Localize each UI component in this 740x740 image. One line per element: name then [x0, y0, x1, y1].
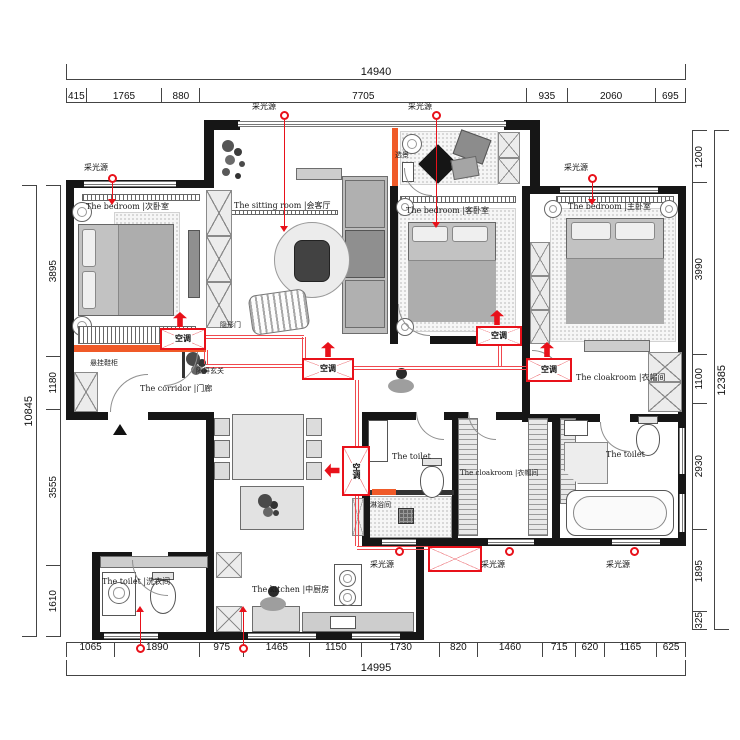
wall [416, 545, 424, 640]
wall [206, 412, 214, 640]
light-source-arrow-icon [136, 602, 144, 612]
dim-segment: 1730 [361, 642, 439, 657]
dining-chair [306, 418, 322, 436]
burner [339, 570, 356, 587]
dim-right-segments: 12003990110029301895325 [692, 130, 707, 630]
dim-segment: 935 [526, 88, 567, 103]
dim-segment-value: 880 [172, 91, 191, 103]
bathtub-basin [573, 496, 667, 530]
dim-segment: 1065 [66, 642, 114, 657]
light-source-icon [588, 174, 597, 183]
light-source-icon [395, 547, 404, 556]
light-source-icon [136, 644, 145, 653]
ac-label: 空调 [490, 332, 508, 340]
dim-top-segments: 415176588077059352060695 [66, 88, 686, 103]
sofa-cushion [345, 280, 385, 328]
door-arc [164, 352, 198, 386]
dim-segment: 7705 [199, 88, 526, 103]
dim-segment: 1180 [46, 356, 61, 409]
dim-segment-value: 7705 [351, 91, 375, 103]
light-source-label: 采光源 [564, 162, 588, 173]
room-label-cloakroom-center: The cloakroom |衣帽间 [460, 468, 538, 478]
pillow [412, 226, 448, 242]
light-source-line [140, 610, 141, 644]
room-label-toilet-center: The toilet [392, 452, 431, 461]
wardrobe-cabinet [206, 190, 232, 236]
light-source-icon [280, 111, 289, 120]
plant [222, 140, 234, 152]
striped-pouf [247, 288, 310, 336]
dim-segment-value: 695 [661, 91, 680, 103]
ac-arrow-icon [325, 464, 340, 478]
light-source-icon [505, 547, 514, 556]
dim-bottom-total-value: 14995 [361, 662, 392, 674]
light-source-label: 采光源 [481, 559, 505, 570]
dresser [188, 230, 200, 298]
room-label-laundry: The toilet |洗衣间 [102, 576, 170, 587]
ac-label: 空调 [319, 365, 337, 373]
tv-console [296, 168, 342, 180]
dim-left-total-value: 10845 [23, 396, 35, 427]
room-label-bedroom-left: The bedroom |次卧室 [86, 201, 169, 212]
dim-segment-value: 1165 [619, 642, 643, 654]
ac-unit: 空调 [302, 358, 354, 380]
ac-pipe [355, 380, 359, 446]
dim-segment: 3895 [46, 185, 61, 356]
dim-segment-value: 415 [67, 91, 86, 103]
wall [496, 412, 526, 420]
light-source-arrow-icon [280, 226, 288, 236]
light-source-arrow-icon [239, 602, 247, 612]
light-source-label: 采光源 [84, 162, 108, 173]
dim-segment-value: 325 [694, 612, 705, 629]
nightstand-lamp [660, 200, 678, 218]
dim-segment-value: 1065 [79, 642, 103, 654]
balcony-closet [498, 158, 520, 184]
dining-chair [214, 418, 230, 436]
pillow [82, 271, 96, 309]
ac-pipe [357, 546, 429, 550]
kitchen-island [240, 486, 304, 530]
dim-segment-value: 975 [212, 642, 231, 654]
light-source-line [243, 610, 244, 644]
wall [522, 186, 530, 346]
room-label-bedroom-mid: The bedroom |客卧室 [406, 205, 489, 216]
armchair [294, 240, 330, 282]
dim-segment: 3555 [46, 409, 61, 565]
dim-segment-value: 625 [662, 642, 681, 654]
island-plant [258, 494, 272, 508]
dim-segment-value: 2060 [599, 91, 623, 103]
screen-entry-label: 隔屏玄关 [196, 366, 224, 376]
dining-chair [214, 440, 230, 458]
dim-segment-value: 935 [537, 91, 556, 103]
window [104, 633, 158, 639]
room-label-kitchen: The kitchen |中厨房 [252, 584, 329, 595]
wall [362, 412, 416, 420]
dim-segment: 3990 [692, 182, 707, 354]
ac-label: 空调 [351, 463, 361, 479]
light-source-icon [239, 644, 248, 653]
scenery-label: 选景 [395, 150, 409, 160]
floor-plan-canvas: 14940 415176588077059352060695 106518909… [0, 0, 740, 740]
kitchen-counter [302, 612, 414, 632]
light-source-label: 采光源 [252, 101, 276, 112]
dresser [584, 340, 650, 352]
dim-segment-value: 715 [550, 642, 569, 654]
light-source-icon [108, 174, 117, 183]
dim-segment: 820 [439, 642, 476, 657]
light-source-label: 采光源 [606, 559, 630, 570]
dim-segment-value: 1890 [145, 642, 169, 654]
dim-segment: 1890 [114, 642, 199, 657]
dim-segment-value: 1610 [48, 590, 59, 612]
dim-right-total: 12385 [714, 130, 729, 630]
balcony-closet [498, 132, 520, 158]
dim-bottom-total: 14995 [66, 660, 686, 676]
dim-top-total-value: 14940 [361, 66, 392, 78]
light-source-label: 采光源 [408, 101, 432, 112]
pillow [82, 229, 96, 267]
dim-segment: 625 [656, 642, 686, 657]
bathroom-sink [564, 420, 588, 436]
light-source-icon [630, 547, 639, 556]
window [560, 187, 658, 193]
wall [66, 412, 108, 420]
room-label-bedroom-right: The bedroom |主卧室 [568, 201, 651, 212]
light-source-icon [432, 111, 441, 120]
dim-segment: 975 [199, 642, 243, 657]
light-source-line [592, 183, 593, 199]
light-source-label: 采光源 [370, 559, 394, 570]
dim-segment: 1465 [243, 642, 309, 657]
light-source-line [112, 183, 113, 199]
dining-chair [214, 462, 230, 480]
person-figure [388, 379, 414, 393]
dim-segment: 620 [575, 642, 604, 657]
window [248, 633, 316, 639]
window [612, 539, 660, 545]
highlight-box [428, 546, 482, 572]
dim-segment-value: 2930 [694, 455, 705, 477]
sofa-cushion [345, 180, 385, 228]
light-source-arrow-icon [432, 222, 440, 232]
shoe-cabinet-label: 悬挂鞋柜 [90, 358, 118, 368]
orange-wall-strip [372, 489, 396, 495]
ac-pipe [302, 337, 306, 358]
dim-segment-value: 1460 [498, 642, 522, 654]
person-figure [260, 597, 286, 611]
wall [530, 120, 540, 194]
sofa-cushion [345, 230, 385, 278]
room-label-shower: 淋浴间 [370, 500, 391, 510]
dim-segment-value: 1180 [48, 372, 59, 394]
shower-head [398, 508, 414, 524]
dim-segment-value: 1100 [694, 368, 705, 390]
dim-segment: 715 [542, 642, 575, 657]
dim-segment: 1895 [692, 529, 707, 611]
dim-segment-value: 1895 [694, 560, 705, 582]
ac-unit: 空调 [476, 326, 522, 346]
window-sill [400, 196, 516, 203]
window [382, 539, 416, 545]
kitchen-cabinet [216, 552, 242, 578]
dim-segment: 880 [161, 88, 199, 103]
window [488, 539, 534, 545]
dining-table [232, 414, 304, 480]
kitchen-sink [330, 616, 356, 629]
dim-segment-value: 1465 [265, 642, 289, 654]
dim-segment: 2930 [692, 403, 707, 530]
dim-segment: 1460 [477, 642, 543, 657]
ac-pipe [355, 496, 359, 546]
wardrobe-cabinet [530, 242, 550, 276]
dim-left-segments: 3895118035551610 [46, 185, 61, 637]
dim-top-total: 14940 [66, 64, 686, 80]
dim-segment: 1200 [692, 130, 707, 182]
room-label-cloakroom-right: The cloakroom |衣帽间 [576, 372, 666, 383]
hidden-door-label: 隐形门 [220, 320, 241, 330]
room-label-toilet-right: The toilet [606, 450, 645, 459]
ac-pipe [498, 346, 502, 366]
dim-segment-value: 3555 [48, 476, 59, 498]
ac-pipe [354, 366, 526, 370]
wall [204, 120, 240, 130]
window [84, 181, 176, 187]
dim-segment-value: 3895 [48, 260, 59, 282]
dim-left-total: 10845 [22, 185, 37, 637]
dim-segment: 1150 [309, 642, 361, 657]
pillow [452, 226, 488, 242]
dim-segment-value: 620 [580, 642, 599, 654]
dim-segment: 325 [692, 611, 707, 630]
pillow [615, 222, 655, 240]
ac-pipe [206, 335, 304, 339]
dim-segment-value: 1200 [694, 146, 705, 168]
wardrobe-cabinet [530, 310, 550, 344]
wall [148, 412, 214, 420]
ac-unit: 空调 [342, 446, 370, 496]
dim-segment-value: 1765 [112, 91, 136, 103]
dim-segment: 1765 [86, 88, 162, 103]
toilet-tank [638, 416, 658, 424]
dim-right-total-value: 12385 [716, 365, 728, 396]
dim-segment: 1165 [604, 642, 657, 657]
entry-arrow [113, 424, 127, 435]
wall [204, 120, 214, 188]
dim-segment: 1100 [692, 354, 707, 402]
door-arc [404, 168, 432, 196]
dim-segment: 415 [66, 88, 86, 103]
dim-segment-value: 3990 [694, 258, 705, 280]
toilet-fixture [420, 466, 444, 498]
dim-segment-value: 820 [449, 642, 468, 654]
room-label-sitting-room: The sitting room |会客厅 [234, 200, 331, 211]
wardrobe-cabinet [530, 276, 550, 310]
wall [92, 552, 100, 640]
wall [390, 336, 398, 344]
wardrobe-cabinet [206, 236, 232, 282]
dim-segment: 1610 [46, 565, 61, 637]
ac-pipe [204, 350, 208, 364]
ac-arrow-icon [321, 342, 335, 357]
dim-segment: 2060 [567, 88, 655, 103]
burner [339, 589, 356, 606]
window [679, 428, 685, 474]
window [679, 494, 685, 532]
ac-label: 空调 [174, 335, 192, 343]
dim-bottom-segments: 1065189097514651150173082014607156201165… [66, 642, 686, 657]
shoe-cabinet [74, 372, 98, 412]
wall [552, 414, 560, 538]
cloakroom-cabinet [648, 382, 682, 412]
window [238, 121, 506, 127]
bed-blanket [566, 258, 664, 324]
dining-chair [306, 462, 322, 480]
window-sill [82, 194, 200, 201]
dim-segment-value: 1730 [389, 642, 413, 654]
window [352, 633, 400, 639]
ac-unit: 空调 [526, 358, 572, 382]
ac-label: 空调 [540, 366, 558, 374]
pillow [571, 222, 611, 240]
room-label-corridor: The corridor |门廊 [140, 383, 212, 394]
nightstand-lamp [544, 200, 562, 218]
dim-segment: 695 [655, 88, 686, 103]
bed-blanket [118, 225, 173, 315]
ac-unit: 空调 [160, 328, 206, 350]
dim-segment-value: 1150 [324, 642, 348, 654]
dining-chair [306, 440, 322, 458]
vanity [368, 420, 388, 462]
door-arc [416, 412, 444, 440]
